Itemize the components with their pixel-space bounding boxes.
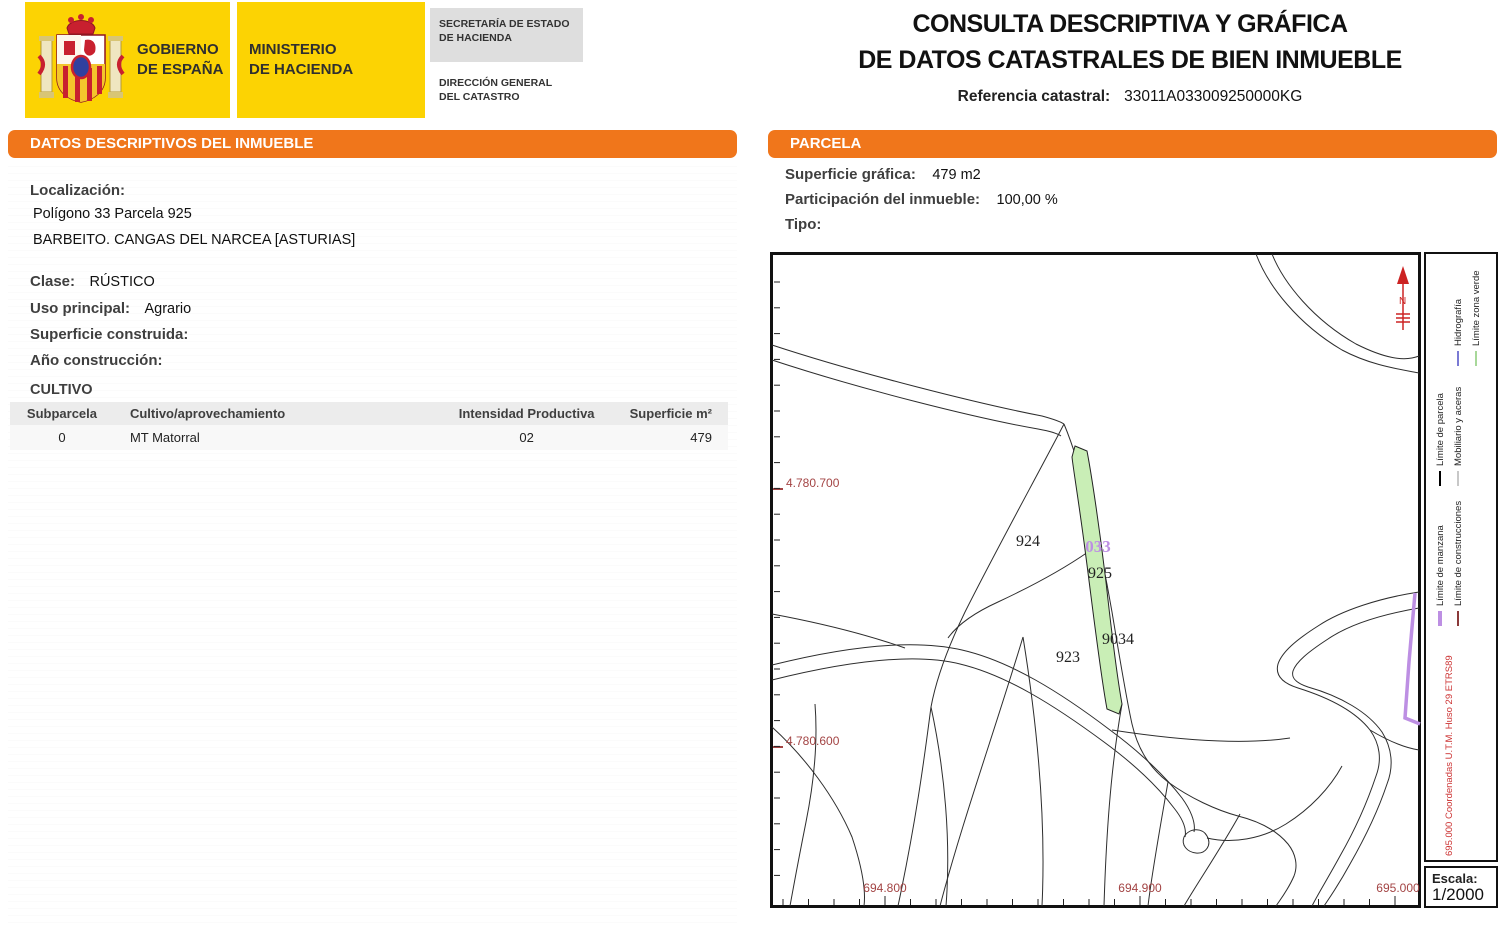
superficie-construida-row: Superficie construida: <box>30 326 198 344</box>
parcel-label-924: 924 <box>1016 533 1040 550</box>
document-title-line2: DE DATOS CATASTRALES DE BIEN INMUEBLE <box>765 42 1495 78</box>
hidrografia-legend-line <box>1457 351 1459 366</box>
clase-label: Clase: <box>30 273 75 290</box>
legend-limite-parcela: Límite de parcela <box>1434 366 1446 486</box>
parcela-header: PARCELA <box>768 130 1497 158</box>
participacion-value: 100,00 % <box>997 192 1058 208</box>
mobiliario-legend-line <box>1457 471 1459 486</box>
parcel-label-923: 923 <box>1056 649 1080 666</box>
localizacion-label: Localización: <box>30 182 125 199</box>
limite-construcciones-legend-line <box>1457 611 1459 626</box>
gobierno-logo-block: GOBIERNO DE ESPAÑA <box>25 2 230 118</box>
catastro-consulta-page: { "header": { "gobierno_line1": "GOBIERN… <box>0 0 1500 926</box>
referencia-catastral-label: Referencia catastral: <box>958 88 1111 105</box>
uso-principal-row: Uso principal: Agrario <box>30 300 191 318</box>
secretaria-box: SECRETARÍA DE ESTADO DE HACIENDA <box>430 8 583 62</box>
parcel-label-925: 925 <box>1088 565 1112 582</box>
cell-cultivo: MT Matorral <box>114 425 440 450</box>
cultivo-title: CULTIVO <box>30 382 93 398</box>
tipo-label: Tipo: <box>785 216 821 233</box>
clase-row: Clase: RÚSTICO <box>30 273 155 291</box>
x-label-694800: 694.800 <box>863 881 907 895</box>
escala-label: Escala: <box>1432 871 1496 886</box>
tipo-row: Tipo: <box>785 216 833 234</box>
escala-value: 1/2000 <box>1432 886 1496 903</box>
document-title: CONSULTA DESCRIPTIVA Y GRÁFICA DE DATOS … <box>765 6 1495 78</box>
y-label-4780700: 4.780.700 <box>786 476 840 490</box>
localizacion-line2: BARBEITO. CANGAS DEL NARCEA [ASTURIAS] <box>33 232 355 248</box>
col-subparcela: Subparcela <box>10 402 114 425</box>
legend-hidrografia: Hidrografía <box>1452 274 1464 366</box>
datos-descriptivos-panel: Localización: Polígono 33 Parcela 925 BA… <box>8 160 737 926</box>
limite-zona-verde-legend-line <box>1475 351 1477 366</box>
uso-principal-label: Uso principal: <box>30 300 130 317</box>
secretaria-label-line2: DE HACIENDA <box>439 31 583 45</box>
utm-coordinates-note: 695.000 Coordenadas U.T.M. Huso 29 ETRS8… <box>1444 655 1455 856</box>
col-intensidad: Intensidad Productiva <box>440 402 613 425</box>
cell-superficie: 479 <box>613 425 728 450</box>
limite-parcela-legend-line <box>1439 471 1441 486</box>
superficie-grafica-row: Superficie gráfica: 479 m2 <box>785 166 981 184</box>
localizacion-line1: Polígono 33 Parcela 925 <box>33 206 192 222</box>
referencia-catastral-value: 33011A033009250000KG <box>1124 88 1302 105</box>
parcel-label-9034: 9034 <box>1102 631 1134 648</box>
col-superficie: Superficie m² <box>613 402 728 425</box>
referencia-catastral-row: Referencia catastral:33011A033009250000K… <box>765 88 1495 106</box>
anio-construccion-label: Año construcción: <box>30 352 163 369</box>
legend-mobiliario: Mobiliario y aceras <box>1452 366 1464 486</box>
gobierno-label-line2: DE ESPAÑA <box>137 60 223 80</box>
document-title-line1: CONSULTA DESCRIPTIVA Y GRÁFICA <box>765 6 1495 42</box>
legend-limite-construcciones: Límite de construcciones <box>1452 486 1464 626</box>
x-label-694900: 694.900 <box>1118 881 1162 895</box>
cadastral-map: N 924 033 925 9034 923 4.780.700 4.780.6… <box>770 252 1421 908</box>
superficie-construida-label: Superficie construida: <box>30 326 188 343</box>
north-label: N <box>1399 296 1406 307</box>
x-label-695000: 695.000 <box>1376 881 1420 895</box>
secretaria-label-line1: SECRETARÍA DE ESTADO <box>439 17 583 31</box>
map-legend: Límite de parcela Límite de manzana Hidr… <box>1424 252 1498 862</box>
legend-limite-zona-verde: Límite zona verde <box>1470 266 1482 366</box>
limite-manzana-legend-line <box>1438 611 1442 626</box>
ministerio-label-line1: MINISTERIO <box>249 40 353 60</box>
gobierno-label-line1: GOBIERNO <box>137 40 223 60</box>
datos-descriptivos-header: DATOS DESCRIPTIVOS DEL INMUEBLE <box>8 130 737 158</box>
uso-principal-value: Agrario <box>144 301 191 317</box>
participacion-row: Participación del inmueble: 100,00 % <box>785 191 1058 209</box>
direccion-general-label: DIRECCIÓN GENERAL DEL CATASTRO <box>439 76 599 104</box>
superficie-grafica-label: Superficie gráfica: <box>785 166 916 183</box>
cultivo-table-row: 0 MT Matorral 02 479 <box>10 425 728 450</box>
polygon-label-033: 033 <box>1085 537 1111 556</box>
participacion-label: Participación del inmueble: <box>785 191 980 208</box>
cadastral-map-svg: N 924 033 925 9034 923 4.780.700 4.780.6… <box>770 252 1421 908</box>
legend-limite-manzana: Límite de manzana <box>1434 498 1446 626</box>
cell-subparcela: 0 <box>10 425 114 450</box>
cell-intensidad: 02 <box>440 425 613 450</box>
scale-box: Escala: 1/2000 <box>1424 866 1498 908</box>
ministerio-label-line2: DE HACIENDA <box>249 60 353 80</box>
cultivo-table: Subparcela Cultivo/aprovechamiento Inten… <box>10 402 728 450</box>
col-cultivo: Cultivo/aprovechamiento <box>114 402 440 425</box>
anio-construccion-row: Año construcción: <box>30 352 173 370</box>
spain-coat-of-arms <box>37 12 125 110</box>
cultivo-table-header-row: Subparcela Cultivo/aprovechamiento Inten… <box>10 402 728 425</box>
superficie-grafica-value: 479 m2 <box>932 167 980 183</box>
y-label-4780600: 4.780.600 <box>786 734 840 748</box>
ministerio-block: MINISTERIO DE HACIENDA <box>237 2 425 118</box>
clase-value: RÚSTICO <box>89 274 154 290</box>
